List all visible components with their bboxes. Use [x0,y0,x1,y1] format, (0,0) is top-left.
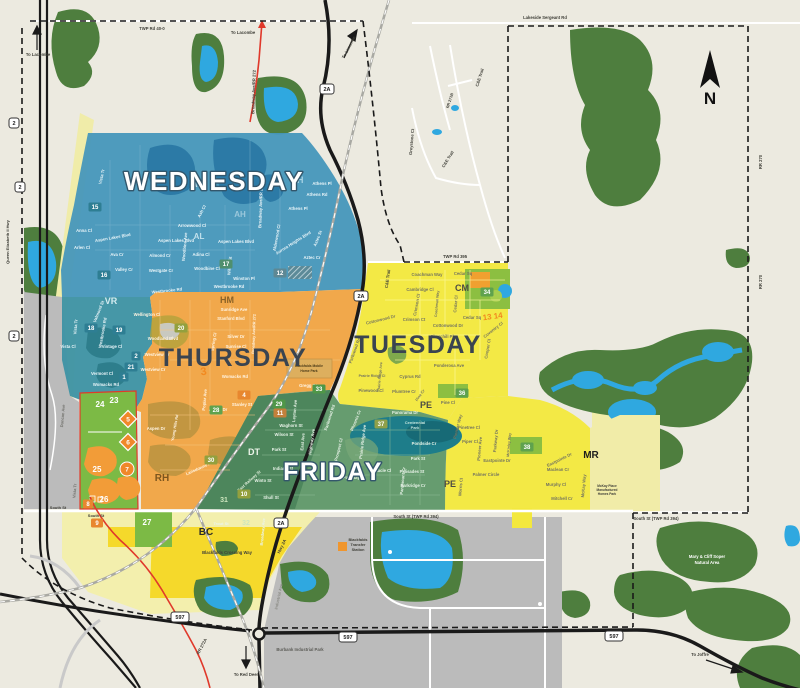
street-label: Wellington Cl [134,312,161,317]
street-label: Coachman Way [411,272,443,277]
zone-badge-number: 28 [213,408,220,414]
highway-shield-number: 2 [12,334,15,340]
transfer-station-marker [338,542,347,551]
highway-shield-number: 2 [12,121,15,127]
street-label: Murphy Cl [546,482,566,487]
highway-shield: 2 [9,118,19,128]
zone-badge-number: 34 [484,290,491,296]
street-label: Anna Cl [76,228,92,233]
street-label: Pine Cl [441,400,455,405]
road-end-dot [388,550,392,554]
highway-shield-number: 2 [18,185,21,191]
highway-shield-number: 2A [357,294,364,300]
street-label: Aspen Lakes Blvd [218,239,255,244]
street-label: Vermont Cl [91,371,113,376]
street-label: Adina Cl [193,252,210,257]
street-label: Burbank Industrial Park [276,647,324,652]
street-label: Womacks Rd [222,374,249,379]
highway-shield: 2A [320,84,334,94]
highway-shield: 597 [171,612,189,622]
hatched-area [288,266,312,279]
area-code: VR [105,296,118,306]
zone-badge: 38 [521,443,534,452]
street-label: Cedar Sq [454,271,473,276]
street-label: Valley Cr [115,267,133,272]
street-label: South St [50,505,67,510]
street-label: To Lacombe [26,52,51,57]
street-label: Cambridge Cl [406,287,433,292]
zone-number: 23 [110,396,119,405]
area-code: PE [420,400,432,410]
zone-number: 24 [96,400,105,409]
area-code: RH [155,473,169,484]
zone-badge: 34 [481,288,494,297]
zone-badge-number: 36 [459,391,466,397]
street-label: TWP Rd 395 [443,254,468,259]
zone-badge: 36 [456,389,469,398]
street-label: Vintage Cl [102,344,122,349]
zone-number: 31 [220,497,228,504]
zone-badge-number: 29 [276,402,283,408]
street-label: Silver Dr [227,334,245,339]
zone-badge: 2 [132,352,141,361]
zone-badge-number: 19 [116,328,123,334]
depot-marker-7: 7 [120,462,134,476]
street-label: TWP Rd 40-0 [139,26,165,31]
zone-number: 26 [100,495,109,504]
highway-shield: 597 [605,631,623,641]
zone-badge: 33 [313,385,326,394]
street-label: Trout St [213,521,229,526]
street-label: Blackfalds [349,538,368,542]
street-label: Palmer Circle [473,472,500,477]
zone-badge-number: 30 [208,458,215,464]
zone-badge: 17 [220,260,233,269]
collection-zone-map: N 5 6 7 TWP Rd 40-0To LacombeTo LacombeT… [0,0,800,688]
depot-marker-7-label: 7 [125,467,129,474]
zone-badge: 11 [274,409,287,418]
street-label: Blackfalds Crossing Way [202,550,253,555]
zone-badge-number: 16 [101,273,108,279]
street-label: Wilson St [274,432,294,437]
zone-badge: 29 [273,400,286,409]
street-label: Piper Cl [462,439,478,444]
street-label: South St [88,513,105,518]
street-label: Westgate Cr [149,268,174,273]
area-code: MR [583,450,599,461]
zone-day-label: THURSDAY [159,344,308,372]
road-end-dot [538,602,542,606]
zone-day-label: WEDNESDAY [124,166,304,196]
street-label: Ava Cr [110,252,124,257]
street-label: Vista Cl [60,344,75,349]
street-label: Natural Area [695,560,720,565]
zone-27-lime [135,510,172,547]
zone-badge: 21 [125,363,138,372]
street-label: RR 270 [758,274,763,289]
street-label: Park St [411,456,426,461]
zone-badge: 20 [175,324,188,333]
street-label: Arlen Cl [74,245,90,250]
street-label: Winston Pl [233,276,255,281]
zone-badge: 12 [274,269,287,278]
zone-badge-number: 12 [277,271,284,277]
zone-badge: 28 [210,406,223,415]
street-label: Sunridge Ave [221,307,248,312]
street-label: Transfer [351,543,367,547]
zone-badge-number: 17 [223,262,230,268]
street-label: Athens Rd [307,192,328,197]
street-label: Pinetree Cl [458,425,480,430]
street-label: Waghorn St [279,423,303,428]
street-label: Queen Elizabeth II Hwy [5,219,10,264]
bc-yellow-block [108,527,138,547]
street-label: Maclean Cr [547,467,570,472]
street-label: Homes Park [598,492,617,496]
street-label: Stanley St [232,402,253,407]
street-label: Athens Pl [312,181,331,186]
street-label: Aspen Dr [147,426,166,431]
zone-badge-number: 37 [378,422,385,428]
highway-shield-number: 597 [175,615,184,621]
depot-marker-6-label: 6 [126,440,130,447]
street-label: Mitchell Cr [551,496,573,501]
highway-shield-number: 597 [609,634,618,640]
street-label: Aspen Lakes Blvd [158,238,195,243]
zone-badge-number: 18 [88,326,95,332]
area-code: AL [194,232,205,241]
zone-badge: 19 [113,326,126,335]
zone-badge: 8 [83,500,93,509]
highway-shield: 2A [354,291,368,301]
street-label: Almond Cr [149,253,171,258]
zone-badge: 15 [89,203,102,212]
zone-badge-number: 20 [178,326,185,332]
zone-day-label: FRIDAY [283,458,383,486]
street-label: Shull St [263,495,279,500]
street-label: To Lacombe [231,30,256,35]
zone-badge: 16 [98,271,111,280]
zone-badge-number: 21 [128,365,135,371]
zone-badge-number: 38 [524,445,531,451]
street-label: South St (TWP Rd 394) [393,514,439,519]
street-label: South St (TWP Rd 394) [633,516,679,521]
area-code: CM [455,283,469,293]
map-canvas: N 5 6 7 TWP Rd 40-0To LacombeTo LacombeT… [0,0,800,688]
highway-shield-number: 2A [277,521,284,527]
zone-badge: 1 [120,373,129,382]
roundabout [254,629,265,640]
street-label: Woodland Blvd [148,336,179,341]
street-label: Aztec Cr [304,255,321,260]
highway-shield-number: 597 [343,635,352,641]
street-label: Pondside Cr [412,441,437,446]
highway-shield: 2 [9,331,19,341]
zone-badge: 4 [238,391,251,400]
area-code: BC [199,527,213,538]
area-code: HM [220,295,234,305]
highway-shield: 2 [15,182,25,192]
street-label: Ponderosa Ave [434,363,465,368]
highway-shield: 597 [339,632,357,642]
zone-day-label: TUESDAY [354,331,482,359]
street-label: Mary & Cliff Soper [689,554,726,559]
area-code: AH [234,210,246,219]
zone-badge: 9 [91,519,103,528]
zone-badge: 30 [205,456,218,465]
street-label: Cedar Sq [463,315,482,320]
street-label: Arrowwood Cl [178,223,206,228]
street-label: Park St [272,447,287,452]
street-label: Woodbine Cl [194,266,220,271]
depot-marker-5-label: 5 [126,417,130,424]
street-label: Crimson Ct [403,317,426,322]
street-label: Womacks Rd [93,382,120,387]
street-label: Westbrooke Rd [214,284,245,289]
street-label: Winto St [255,478,273,483]
zone-badge: 10 [238,490,251,499]
zone-badge-number: 10 [241,492,248,498]
compass-label: N [704,89,716,108]
street-label: Cottonwood Dr [433,323,464,328]
zone-badge-number: 15 [92,205,99,211]
zone-badge-number: 33 [316,387,323,393]
zone-badge-number: 11 [277,411,284,417]
zone-number: 32 [242,520,250,527]
street-label: Stanford Blvd [217,316,245,321]
street-label: To Red Deer [234,672,259,677]
zone-tuesday-pale-mr [590,415,660,512]
street-label: Park [411,425,420,430]
street-label: Panorama Dr [392,410,418,415]
zone-badge: 37 [375,420,388,429]
street-label: Lakeside Sergeant Rd [523,15,567,20]
street-label: Plumtree Cr [392,389,416,394]
street-label: Cyprus Rd [399,374,421,379]
street-label: Station [352,548,366,552]
highway-shield: 2A [274,518,288,528]
street-label: Athens Pl [288,206,307,211]
street-label: Eastpointe Dr [483,458,511,463]
area-code: DT [248,447,260,457]
street-label: RR 270 [758,154,763,169]
zone-badge: 18 [85,324,98,333]
zone-number: 27 [143,518,152,527]
street-label: To Joffre [691,652,709,657]
highway-shield-number: 2A [323,87,330,93]
zone-number: 25 [93,465,102,474]
area-code: PE [444,479,456,489]
